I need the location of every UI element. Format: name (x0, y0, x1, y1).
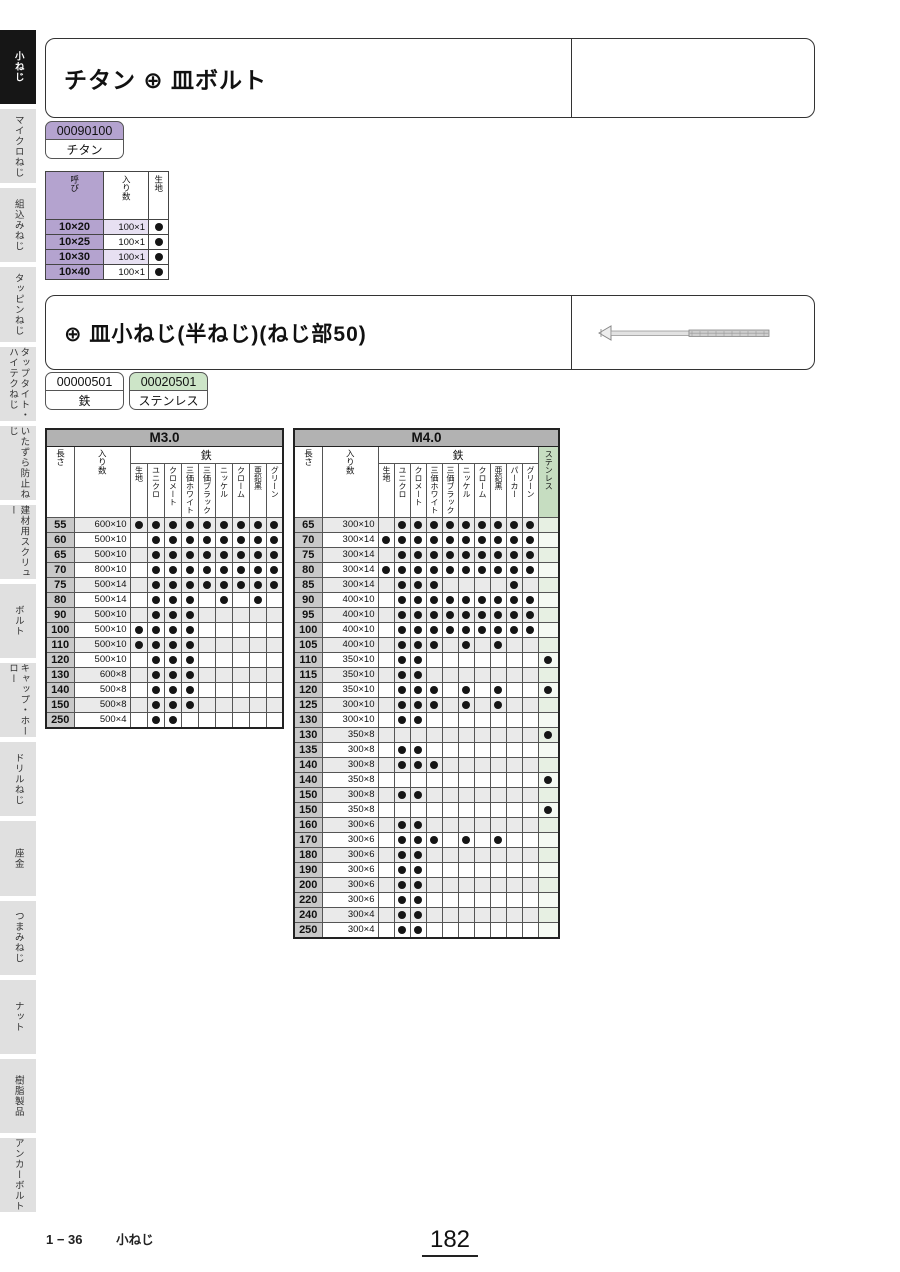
quantity-cell: 300×6 (322, 877, 378, 892)
quantity-header: 入り数 (74, 446, 130, 517)
dot-cell (490, 532, 506, 547)
dot-cell (378, 727, 394, 742)
availability-dot (414, 611, 422, 619)
dot-cell (164, 622, 181, 637)
availability-dot (169, 581, 177, 589)
availability-dot (155, 223, 163, 231)
quantity-cell: 300×14 (322, 562, 378, 577)
availability-dot (169, 701, 177, 709)
dot-cell (506, 622, 522, 637)
section-title: チタン ⊕ 皿ボルト (64, 61, 267, 95)
availability-dot (494, 611, 502, 619)
quantity-cell: 500×4 (74, 712, 130, 728)
length-cell: 240 (294, 907, 322, 922)
availability-dot (398, 896, 406, 904)
sidebar-item-3[interactable]: タッピンねじ (0, 267, 36, 341)
dot-cell (442, 847, 458, 862)
vertical-label: クローム (478, 466, 486, 498)
dot-cell (426, 652, 442, 667)
dot-cell (426, 907, 442, 922)
availability-dot (270, 566, 278, 574)
length-cell: 90 (294, 592, 322, 607)
dot-cell (130, 667, 147, 682)
dot-cell (249, 517, 266, 532)
dot-cell (164, 667, 181, 682)
length-header: 長さ (46, 446, 74, 517)
dot-cell (147, 682, 164, 697)
stainless-dot-cell (538, 547, 559, 562)
sidebar-item-5[interactable]: いたずら防止ねじ (0, 426, 36, 500)
stainless-dot-cell (538, 652, 559, 667)
section-divider (571, 39, 572, 117)
quantity-cell: 500×14 (74, 592, 130, 607)
quantity-cell: 100×1 (104, 235, 149, 250)
vertical-label: ステンレス (544, 450, 552, 490)
dot-cell (149, 235, 169, 250)
quantity-cell: 350×10 (322, 667, 378, 682)
length-cell: 140 (294, 757, 322, 772)
length-cell: 75 (294, 547, 322, 562)
availability-dot (398, 656, 406, 664)
dot-cell (506, 547, 522, 562)
dot-cell (130, 652, 147, 667)
dot-cell (426, 562, 442, 577)
availability-dot (462, 836, 470, 844)
dot-cell (249, 637, 266, 652)
dot-cell (506, 787, 522, 802)
availability-dot (237, 536, 245, 544)
dot-cell (522, 667, 538, 682)
quantity-cell: 300×8 (322, 742, 378, 757)
sidebar-item-11[interactable]: つまみねじ (0, 901, 36, 975)
sidebar-item-7[interactable]: ボルト (0, 584, 36, 658)
sidebar-item-0[interactable]: 小ねじ (0, 30, 36, 104)
dot-cell (394, 592, 410, 607)
sidebar-item-8[interactable]: キャップ・ホーロー (0, 663, 36, 737)
dot-cell (378, 637, 394, 652)
stainless-dot-cell (538, 817, 559, 832)
dot-cell (394, 862, 410, 877)
availability-dot (430, 551, 438, 559)
vertical-label: グリーン (270, 466, 278, 498)
availability-dot (152, 611, 160, 619)
dot-cell (522, 697, 538, 712)
dot-cell (410, 802, 426, 817)
dot-cell (232, 682, 249, 697)
vertical-label: ニッケル (220, 466, 228, 498)
quantity-cell: 300×6 (322, 817, 378, 832)
availability-dot (462, 686, 470, 694)
length-cell: 125 (294, 697, 322, 712)
dot-cell (130, 592, 147, 607)
dot-cell (394, 772, 410, 787)
dot-cell (378, 862, 394, 877)
dot-cell (410, 907, 426, 922)
availability-dot (152, 671, 160, 679)
sidebar-item-label: キャップ・ホーロー (7, 663, 30, 737)
quantity-cell: 300×10 (322, 712, 378, 727)
quantity-cell: 400×10 (322, 607, 378, 622)
availability-dot (152, 641, 160, 649)
dot-cell (442, 757, 458, 772)
dot-cell (490, 562, 506, 577)
dot-cell (506, 832, 522, 847)
length-cell: 150 (294, 802, 322, 817)
dot-cell (458, 892, 474, 907)
dot-cell (378, 787, 394, 802)
dot-cell (506, 682, 522, 697)
dot-cell (490, 607, 506, 622)
dot-cell (522, 592, 538, 607)
availability-dot (220, 536, 228, 544)
dot-cell (410, 697, 426, 712)
availability-dot (414, 821, 422, 829)
dot-cell (442, 802, 458, 817)
availability-dot (398, 641, 406, 649)
dot-cell (426, 577, 442, 592)
sidebar-item-4[interactable]: タップタイト・ハイテクねじ (0, 347, 36, 421)
availability-dot (398, 821, 406, 829)
material-label: 鉄 (45, 391, 124, 410)
dot-cell (394, 907, 410, 922)
dot-cell (522, 802, 538, 817)
dot-cell (181, 547, 198, 562)
availability-dot (155, 238, 163, 246)
table-row: 75500×14 (46, 577, 283, 592)
dot-cell (474, 637, 490, 652)
availability-dot (430, 686, 438, 694)
dot-cell (458, 562, 474, 577)
availability-dot (398, 611, 406, 619)
quantity-cell: 300×8 (322, 757, 378, 772)
availability-dot (152, 596, 160, 604)
availability-dot (186, 686, 194, 694)
dot-cell (198, 652, 215, 667)
dot-cell (442, 787, 458, 802)
dot-cell (266, 637, 283, 652)
quantity-cell: 300×14 (322, 547, 378, 562)
availability-dot (169, 656, 177, 664)
availability-dot (526, 596, 534, 604)
stainless-dot-cell (538, 712, 559, 727)
dot-cell (506, 757, 522, 772)
availability-dot (398, 551, 406, 559)
stainless-dot-cell (538, 772, 559, 787)
table-row: 150300×8 (294, 787, 559, 802)
dot-cell (410, 682, 426, 697)
table-row: 105400×10 (294, 637, 559, 652)
dot-cell (426, 682, 442, 697)
quantity-cell: 300×6 (322, 892, 378, 907)
iron-group-header: 鉄 (378, 446, 538, 463)
dot-cell (458, 832, 474, 847)
availability-dot (254, 566, 262, 574)
catalog-page: 小ねじマイクロねじ組込みねじタッピンねじタップタイト・ハイテクねじいたずら防止ね… (0, 0, 900, 1272)
dot-cell (474, 622, 490, 637)
availability-dot (510, 611, 518, 619)
dot-cell (378, 922, 394, 938)
call-size-cell: 10×30 (46, 250, 104, 265)
sidebar-item-2[interactable]: 組込みねじ (0, 188, 36, 262)
table-row: 110500×10 (46, 637, 283, 652)
availability-dot (462, 701, 470, 709)
dot-cell (266, 622, 283, 637)
availability-dot (398, 881, 406, 889)
dot-cell (181, 577, 198, 592)
availability-dot (186, 566, 194, 574)
dot-cell (378, 772, 394, 787)
dot-cell (249, 622, 266, 637)
dot-cell (410, 847, 426, 862)
length-cell: 75 (46, 577, 74, 592)
length-cell: 110 (294, 652, 322, 667)
availability-dot (494, 596, 502, 604)
availability-dot (152, 686, 160, 694)
dot-cell (410, 577, 426, 592)
quantity-cell: 300×10 (322, 517, 378, 532)
dot-cell (458, 652, 474, 667)
dot-cell (378, 652, 394, 667)
availability-dot (510, 626, 518, 634)
availability-dot (398, 596, 406, 604)
dot-cell (426, 592, 442, 607)
quantity-cell: 300×6 (322, 862, 378, 877)
dot-cell (458, 682, 474, 697)
sidebar-item-14[interactable]: アンカーボルト (0, 1138, 36, 1212)
stainless-dot-cell (538, 847, 559, 862)
iron-group-header: 鉄 (130, 446, 283, 463)
dot-cell (147, 607, 164, 622)
dot-cell (394, 532, 410, 547)
dot-cell (490, 832, 506, 847)
dot-cell (394, 652, 410, 667)
table-row: 80300×14 (294, 562, 559, 577)
dot-cell (249, 577, 266, 592)
table-row: 115350×10 (294, 667, 559, 682)
dot-cell (458, 817, 474, 832)
dot-cell (442, 832, 458, 847)
dot-cell (490, 772, 506, 787)
code-badge-stainless: 00020501 ステンレス (129, 372, 208, 410)
dot-cell (490, 697, 506, 712)
availability-dot (510, 536, 518, 544)
availability-dot (254, 581, 262, 589)
dot-cell (426, 637, 442, 652)
dot-cell (442, 517, 458, 532)
vertical-label: 三価ブラック (203, 466, 211, 514)
dot-cell (490, 592, 506, 607)
sidebar-item-12[interactable]: ナット (0, 980, 36, 1054)
sidebar-item-13[interactable]: 樹脂製品 (0, 1059, 36, 1133)
quantity-cell: 300×14 (322, 532, 378, 547)
length-cell: 70 (294, 532, 322, 547)
dot-cell (394, 622, 410, 637)
dot-cell (490, 727, 506, 742)
sidebar-item-label: ドリルねじ (12, 753, 23, 806)
quantity-cell: 100×1 (104, 220, 149, 235)
footer-category: 小ねじ (116, 1233, 154, 1247)
dot-cell (410, 667, 426, 682)
length-cell: 180 (294, 847, 322, 862)
vertical-label: 入り数 (346, 449, 355, 475)
vertical-label: 呼び (70, 175, 79, 192)
availability-dot (220, 596, 228, 604)
dot-cell (458, 547, 474, 562)
dot-cell (232, 667, 249, 682)
quantity-cell: 600×8 (74, 667, 130, 682)
availability-dot (478, 611, 486, 619)
availability-dot (169, 521, 177, 529)
availability-dot (462, 626, 470, 634)
dot-cell (130, 577, 147, 592)
dot-cell (426, 757, 442, 772)
availability-dot (398, 866, 406, 874)
dot-cell (522, 607, 538, 622)
dot-cell (442, 817, 458, 832)
dot-cell (130, 637, 147, 652)
availability-dot (398, 536, 406, 544)
titanium-size-table: 呼び入り数生地10×20100×110×25100×110×30100×110×… (45, 171, 169, 280)
length-cell: 170 (294, 832, 322, 847)
availability-dot (270, 551, 278, 559)
availability-dot (254, 521, 262, 529)
dot-cell (474, 577, 490, 592)
sidebar-item-10[interactable]: 座金 (0, 821, 36, 895)
dot-cell (232, 607, 249, 622)
availability-dot (494, 641, 502, 649)
vertical-label: 入り数 (122, 175, 131, 201)
length-cell: 140 (46, 682, 74, 697)
dot-cell (130, 517, 147, 532)
availability-dot (510, 596, 518, 604)
table-row: 10×30100×1 (46, 250, 169, 265)
dot-cell (215, 712, 232, 728)
length-cell: 150 (294, 787, 322, 802)
dot-cell (181, 592, 198, 607)
dot-cell (149, 220, 169, 235)
dot-cell (458, 802, 474, 817)
sidebar-item-1[interactable]: マイクロねじ (0, 109, 36, 183)
availability-dot (478, 551, 486, 559)
vertical-label: グリーン (526, 466, 534, 498)
dot-cell (474, 532, 490, 547)
table-title: M3.0 (46, 429, 283, 446)
dot-cell (215, 667, 232, 682)
dot-cell (458, 607, 474, 622)
table-row: 250300×4 (294, 922, 559, 938)
dot-cell (215, 637, 232, 652)
stainless-dot-cell (538, 697, 559, 712)
quantity-header: 入り数 (322, 446, 378, 517)
stainless-dot-cell (538, 592, 559, 607)
dot-cell (506, 892, 522, 907)
dot-cell (181, 652, 198, 667)
vertical-label: ニッケル (462, 466, 470, 498)
availability-dot (270, 581, 278, 589)
availability-dot (494, 836, 502, 844)
dot-cell (522, 562, 538, 577)
dot-cell (522, 832, 538, 847)
availability-dot (430, 761, 438, 769)
table-row: 120350×10 (294, 682, 559, 697)
dot-cell (164, 517, 181, 532)
dot-cell (394, 832, 410, 847)
finish-header: グリーン (266, 463, 283, 517)
vertical-label: 生地 (154, 175, 163, 192)
dot-cell (378, 517, 394, 532)
availability-dot (414, 896, 422, 904)
quantity-cell: 300×10 (322, 697, 378, 712)
availability-dot (414, 596, 422, 604)
availability-dot (152, 701, 160, 709)
group-header-row: 長さ入り数鉄 (46, 446, 283, 463)
dot-cell (164, 532, 181, 547)
dot-cell (522, 877, 538, 892)
availability-dot (526, 626, 534, 634)
vertical-label: 三価ホワイト (430, 466, 438, 514)
stainless-header: ステンレス (538, 446, 559, 517)
availability-dot (526, 611, 534, 619)
dot-cell (506, 607, 522, 622)
dot-cell (147, 562, 164, 577)
dot-cell (490, 637, 506, 652)
dot-cell (522, 847, 538, 862)
availability-dot (526, 521, 534, 529)
dot-cell (378, 592, 394, 607)
table-row: 80500×14 (46, 592, 283, 607)
product-table-M3.0: M3.0長さ入り数鉄生地ユニクロクロメート三価ホワイト三価ブラックニッケルクロー… (45, 428, 284, 729)
availability-dot (186, 581, 194, 589)
sidebar-item-label: 座金 (12, 848, 23, 869)
finish-header: 三価ブラック (442, 463, 458, 517)
dot-cell (522, 757, 538, 772)
dot-cell (378, 742, 394, 757)
dot-cell (181, 562, 198, 577)
dot-cell (426, 697, 442, 712)
dot-cell (215, 547, 232, 562)
availability-dot (494, 536, 502, 544)
availability-dot (254, 536, 262, 544)
vertical-label: 亜鉛黒 (494, 466, 502, 490)
availability-dot (430, 596, 438, 604)
dot-cell (181, 622, 198, 637)
length-cell: 80 (294, 562, 322, 577)
quantity-cell: 400×10 (322, 637, 378, 652)
length-header: 長さ (294, 446, 322, 517)
dot-cell (215, 562, 232, 577)
call-size-cell: 10×40 (46, 265, 104, 280)
sidebar-item-9[interactable]: ドリルねじ (0, 742, 36, 816)
sidebar-item-6[interactable]: 建材用スクリュー (0, 505, 36, 579)
dot-cell (266, 577, 283, 592)
availability-dot (398, 521, 406, 529)
footer-code: 1 − 36 (46, 1232, 83, 1247)
availability-dot (203, 581, 211, 589)
dot-cell (394, 682, 410, 697)
dot-cell (474, 832, 490, 847)
dot-cell (198, 682, 215, 697)
sidebar-item-label: タップタイト・ハイテクねじ (7, 347, 30, 421)
quantity-cell: 500×10 (74, 547, 130, 562)
length-cell: 130 (294, 727, 322, 742)
dot-cell (522, 652, 538, 667)
finish-header: ニッケル (215, 463, 232, 517)
availability-dot (414, 881, 422, 889)
availability-dot (398, 911, 406, 919)
dot-cell (147, 532, 164, 547)
dot-cell (378, 832, 394, 847)
table-row: 140300×8 (294, 757, 559, 772)
